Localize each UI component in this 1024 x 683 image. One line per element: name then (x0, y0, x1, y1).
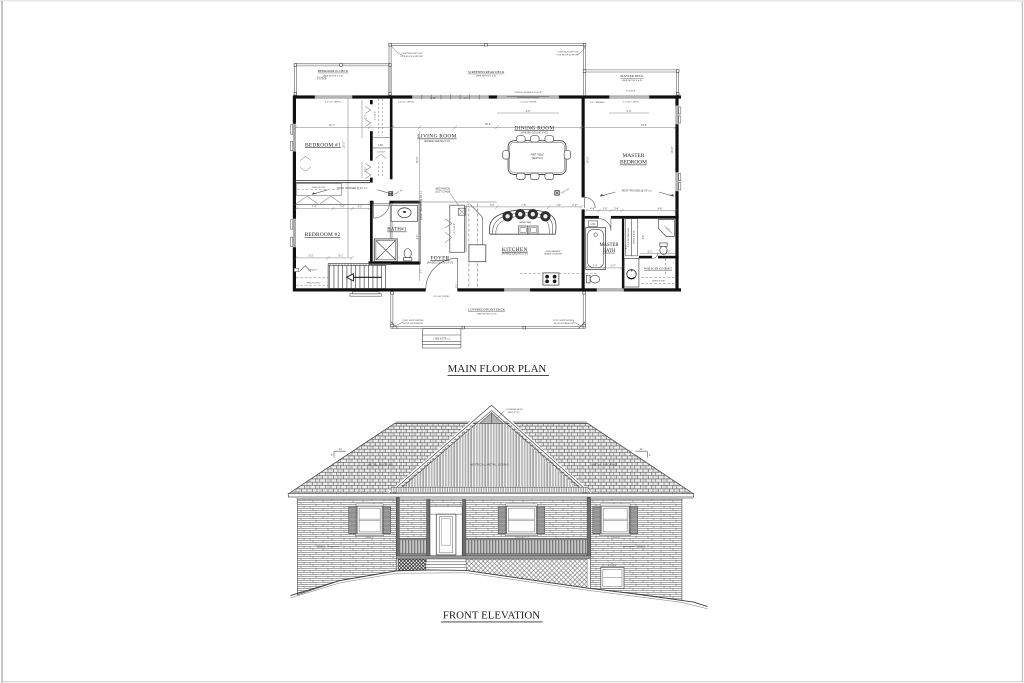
svg-text:4'-6": 4'-6" (590, 207, 595, 210)
svg-text:(SEATS 8): (SEATS 8) (532, 157, 543, 160)
svg-text:METAL ROOFING: METAL ROOFING (368, 462, 394, 466)
svg-text:4'-0"x2'-0": 4'-0"x2'-0" (608, 565, 617, 567)
svg-text:FOR ROOF SUPPORT: FOR ROOF SUPPORT (557, 55, 580, 57)
svg-text:3'-0": 3'-0" (366, 115, 368, 120)
svg-text:4'-0"x8'-8": 4'-0"x8'-8" (454, 223, 456, 233)
svg-text:LOUVERED ATTIC: LOUVERED ATTIC (505, 408, 523, 411)
svg-text:2'-3": 2'-3" (611, 265, 616, 268)
svg-text:5'-2": 5'-2" (309, 255, 314, 258)
svg-text:9'-0": 9'-0" (526, 110, 531, 113)
svg-text:MASTER DECK: MASTER DECK (620, 74, 644, 78)
svg-text:LIN.: LIN. (378, 143, 383, 147)
svg-text:(SEE NOTES 4 & 9): (SEE NOTES 4 & 9) (476, 76, 496, 78)
svg-text:LIN.: LIN. (591, 222, 596, 226)
svg-text:16'-10": 16'-10" (588, 156, 590, 163)
svg-text:ROOF TRUSSES @ 24" o.c.: ROOF TRUSSES @ 24" o.c. (622, 190, 653, 193)
svg-text:(SEE NOTES 4 & 9): (SEE NOTES 4 & 9) (477, 313, 497, 315)
svg-text:MAIN FLOOR PLAN: MAIN FLOOR PLAN (448, 363, 547, 375)
svg-text:2-2"x10" LINTEL: 2-2"x10" LINTEL (433, 296, 450, 298)
svg-text:LIVING ROOM: LIVING ROOM (417, 134, 456, 140)
svg-text:COVERED FRONT DECK: COVERED FRONT DECK (468, 308, 506, 312)
svg-text:11'-7": 11'-7" (329, 124, 335, 127)
svg-text:(TRIPLE SLIDER 9'-0"x6'-8"): (TRIPLE SLIDER 9'-0"x6'-8") (514, 92, 542, 94)
svg-text:( SEE NOTE n ): ( SEE NOTE n ) (433, 338, 450, 340)
svg-text:2-2"x10" LINTEL: 2-2"x10" LINTEL (623, 102, 640, 104)
svg-text:(SEE NOTES 4 & 9): (SEE NOTES 4 & 9) (622, 80, 642, 82)
svg-text:4'-0" OPENING: 4'-0" OPENING (590, 102, 605, 104)
svg-text:7'-4": 7'-4" (490, 204, 495, 207)
svg-text:4'-10": 4'-10" (430, 97, 436, 100)
svg-text:3'-2": 3'-2" (666, 250, 671, 253)
svg-text:ROOF EXTENSION: ROOF EXTENSION (554, 323, 574, 325)
svg-text:BEDROOM #1: BEDROOM #1 (305, 142, 341, 148)
svg-text:RAISED BAR: RAISED BAR (519, 221, 532, 224)
svg-text:2'-0": 2'-0" (421, 269, 423, 274)
svg-text:9'-0": 9'-0" (417, 235, 419, 240)
svg-text:12'-10": 12'-10" (344, 141, 346, 148)
svg-text:SIDING: SIDING (317, 546, 325, 549)
svg-text:DISH WASHER: DISH WASHER (546, 250, 561, 253)
svg-text:6'-8": 6'-8" (643, 235, 645, 240)
svg-text:4'-6": 4'-6" (658, 207, 663, 210)
svg-text:DUCT CHASE: DUCT CHASE (436, 191, 451, 194)
svg-text:(RAISED CEILING 8'-0"): (RAISED CEILING 8'-0") (424, 140, 450, 143)
svg-text:VERTICAL METAL SIDING: VERTICAL METAL SIDING (470, 462, 509, 466)
svg-text:7'-4": 7'-4" (340, 205, 345, 208)
svg-text:5'-0": 5'-0" (627, 110, 632, 113)
svg-text:(RAISED CEILING 8'-0"): (RAISED CEILING 8'-0") (502, 252, 528, 255)
svg-text:2-2'-0" BI-FOLD DRS.: 2-2'-0" BI-FOLD DRS. (628, 227, 630, 247)
svg-text:POST SUPPORTING: POST SUPPORTING (403, 320, 424, 322)
svg-text:FOYER: FOYER (430, 255, 449, 261)
svg-text:SHELF & ROD: SHELF & ROD (312, 187, 325, 189)
svg-text:14'-5": 14'-5" (641, 124, 647, 127)
svg-text:16'-10": 16'-10" (417, 156, 419, 163)
svg-text:5'-0"x4'-0": 5'-0"x4'-0" (611, 537, 620, 539)
svg-text:SCREENED REAR DECK: SCREENED REAR DECK (468, 70, 505, 74)
svg-text:SHELF & ROD: SHELF & ROD (306, 282, 320, 284)
svg-text:2'-6": 2'-6" (603, 207, 608, 210)
svg-text:MECHANICAL: MECHANICAL (435, 188, 451, 191)
svg-text:7'-4": 7'-4" (312, 205, 317, 208)
svg-text:BEDROOM #1 DECK: BEDROOM #1 DECK (318, 69, 349, 73)
svg-text:9'-0"x8'-8": 9'-0"x8'-8" (317, 77, 327, 79)
svg-text:VENT (TYP.): VENT (TYP.) (508, 412, 520, 414)
svg-text:2'-3": 2'-3" (593, 265, 598, 268)
svg-text:MASTER: MASTER (623, 153, 645, 159)
svg-text:5'-1": 5'-1" (648, 250, 653, 253)
svg-text:2-2"x10" LINTEL: 2-2"x10" LINTEL (325, 102, 342, 104)
svg-text:FOR ROOF SUPPORT: FOR ROOF SUPPORT (401, 56, 424, 58)
svg-text:2'-2": 2'-2" (572, 204, 577, 207)
svg-text:UNDER COUNTER: UNDER COUNTER (544, 254, 563, 256)
svg-text:6'-1": 6'-1" (339, 255, 344, 258)
svg-text:SIDING: SIDING (637, 546, 645, 549)
svg-text:2-2"x12" LINTEL: 2-2"x12" LINTEL (398, 102, 415, 104)
svg-text:BATH#1: BATH#1 (387, 228, 407, 233)
svg-text:4'-1": 4'-1" (358, 205, 363, 208)
svg-text:3'-4": 3'-4" (614, 207, 619, 210)
svg-text:WALK-IN CLOSET: WALK-IN CLOSET (644, 267, 673, 271)
svg-text:3'-0": 3'-0" (457, 284, 459, 289)
svg-text:DINING ROOM: DINING ROOM (515, 125, 555, 131)
svg-text:ROOF EXTENSION: ROOF EXTENSION (403, 323, 423, 325)
svg-text:2'-6": 2'-6" (464, 97, 469, 100)
svg-text:4'-0"x4'-0": 4'-0"x4'-0" (365, 537, 374, 539)
svg-text:7'-4": 7'-4" (556, 204, 561, 207)
svg-text:ROOF TRUSSES @ 24" o.c.: ROOF TRUSSES @ 24" o.c. (337, 187, 368, 190)
svg-text:SHELF & ROD: SHELF & ROD (652, 281, 665, 283)
svg-text:MASTER: MASTER (599, 243, 619, 248)
svg-text:ROOF TRUSSES @ 24" o.c.: ROOF TRUSSES @ 24" o.c. (421, 190, 423, 220)
svg-text:2'-0"x6'-8": 2'-0"x6'-8" (377, 151, 386, 153)
svg-text:BEDROOM #2: BEDROOM #2 (305, 232, 341, 238)
svg-text:BEDROOM: BEDROOM (620, 160, 647, 166)
svg-text:7'-0": 7'-0" (521, 204, 526, 207)
svg-text:9'-0"x8'-8": 9'-0"x8'-8" (626, 91, 636, 93)
svg-text:4'-8": 4'-8" (626, 245, 628, 250)
svg-text:2'-8": 2'-8" (366, 168, 368, 173)
svg-text:FRONT ELEVATION: FRONT ELEVATION (443, 609, 540, 621)
svg-text:16'-10": 16'-10" (672, 146, 674, 153)
svg-text:4'-0"x6'-8": 4'-0"x6'-8" (374, 111, 376, 120)
svg-text:30'-6": 30'-6" (485, 123, 491, 126)
svg-text:BATH: BATH (603, 249, 616, 254)
svg-text:2'-0"x6'-8": 2'-0"x6'-8" (307, 269, 317, 271)
svg-text:(RAISED CEILING 8'-0"): (RAISED CEILING 8'-0") (521, 132, 547, 135)
svg-text:POST SUPPORTING: POST SUPPORTING (553, 320, 574, 322)
svg-text:CONTINUOUS POST: CONTINUOUS POST (557, 52, 579, 54)
svg-text:METAL ROOFING: METAL ROOFING (592, 462, 618, 466)
svg-text:SHELF & ROD: SHELF & ROD (634, 230, 636, 244)
svg-text:3'-0": 3'-0" (379, 97, 384, 100)
svg-text:2-2"x12" LINTEL: 2-2"x12" LINTEL (520, 102, 537, 104)
svg-text:PIER TABLE: PIER TABLE (531, 154, 545, 157)
svg-text:CONTINUOUS POST: CONTINUOUS POST (401, 53, 423, 55)
